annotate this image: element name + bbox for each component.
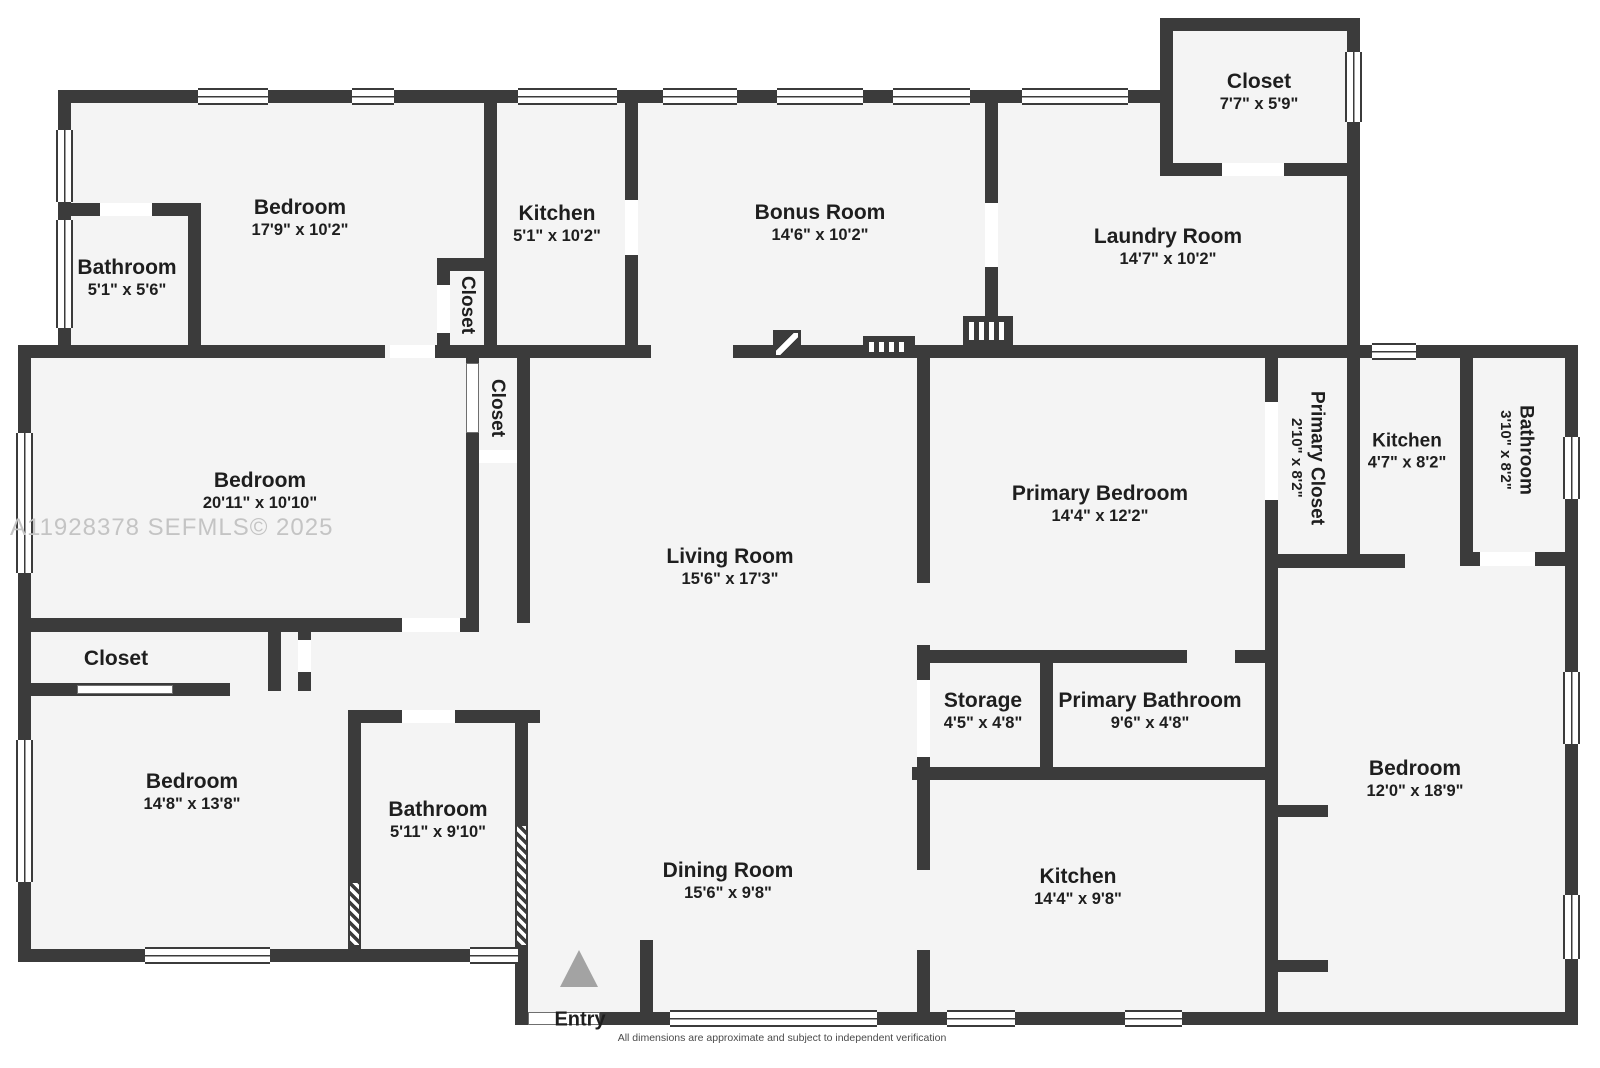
room-name: Closet [456,276,478,334]
room-dims: 3'10" x 8'2" [1495,405,1515,495]
room-name: Bathroom [388,798,487,822]
room-name: Bedroom [1367,757,1464,781]
room-label-primary-closet: Primary Closet 2'10" x 8'2" [1286,391,1327,525]
wall [1265,554,1360,568]
wall [18,345,385,358]
room-name: Closet [486,379,508,437]
wall [917,757,930,870]
window [56,130,73,202]
wall [640,940,653,1025]
wall [1278,960,1328,972]
room-label-bathroom-2: Bathroom 3'10" x 8'2" [1495,405,1536,495]
room-label-bedroom-1: Bedroom 17'9" x 10'2" [252,196,349,242]
door-leaf [466,363,479,433]
room-label-bedroom-2: Bedroom 20'11" x 10'10" [203,469,317,515]
room-dims: 14'8" x 13'8" [144,794,241,815]
wall [1040,663,1053,767]
window [893,88,970,105]
entry-label: Entry [554,1009,605,1032]
window [1563,437,1580,499]
window [16,433,33,573]
room-dims: 14'6" x 10'2" [755,225,886,246]
wall [925,650,1187,663]
window [1345,52,1362,122]
window [777,88,863,105]
room-dims: 14'7" x 10'2" [1094,249,1242,270]
post [773,330,801,358]
room-dims: 9'6" x 4'8" [1058,713,1241,734]
room-name: Primary Bathroom [1058,689,1241,713]
wall [18,618,466,632]
room-label-bedroom-3: Bedroom 14'8" x 13'8" [144,770,241,816]
room-dims: 5'11" x 9'10" [388,822,487,843]
window [1563,895,1580,959]
door-opening [402,618,460,632]
room-label-kitchen-3: Kitchen 14'4" x 9'8" [1034,865,1122,911]
room-label-bonus-room: Bonus Room 14'6" x 10'2" [755,201,886,247]
door-opening [479,450,517,463]
hatched-wall-segment [348,881,361,947]
wall [435,345,651,358]
room-dims: 12'0" x 18'9" [1367,781,1464,802]
door-opening [917,680,930,757]
room-label-bathroom-3: Bathroom 5'11" x 9'10" [388,798,487,844]
door-opening [625,200,638,255]
room-name: Bedroom [252,196,349,220]
wall [1160,18,1173,176]
wall [1460,345,1473,566]
window [1372,343,1416,360]
room-name: Bedroom [203,469,317,493]
room-label-closet-top: Closet 7'7" x 5'9" [1220,70,1299,116]
window [947,1010,1015,1027]
room-name: Bathroom [77,256,176,280]
door-opening [1222,163,1284,176]
wall [484,90,497,358]
window [145,947,270,964]
door-leaf [77,685,173,694]
room-dims: 5'1" x 10'2" [513,226,601,247]
room-dims: 4'7" x 8'2" [1368,452,1447,473]
door-opening [402,710,455,723]
room-label-primary-bedroom: Primary Bedroom 14'4" x 12'2" [1012,482,1188,528]
disclaimer-text: All dimensions are approximate and subje… [618,1032,947,1044]
door-opening [437,285,450,333]
window [1563,672,1580,744]
room-dims: 4'5" x 4'8" [944,713,1023,734]
door-opening [1480,552,1535,566]
wall [517,358,530,623]
room-dims: 2'10" x 8'2" [1286,391,1306,525]
room-name: Primary Bedroom [1012,482,1188,506]
door-opening [1265,402,1278,500]
wall [268,618,281,691]
room-name: Kitchen [513,202,601,226]
door-opening [100,203,152,216]
window [670,1010,877,1027]
room-name: Kitchen [1368,430,1447,452]
room-dims: 17'9" x 10'2" [252,220,349,241]
room-label-closet-mid: Closet [486,379,508,437]
room-label-bathroom-1: Bathroom 5'1" x 5'6" [77,256,176,302]
window [352,88,394,105]
entry-arrow-icon [560,950,598,987]
floor-plan: Closet 7'7" x 5'9" Bedroom 17'9" x 10'2"… [0,0,1600,1068]
room-dims: 15'6" x 17'3" [666,569,793,590]
wall [1278,805,1328,817]
room-name: Living Room [666,545,793,569]
room-name: Primary Closet [1306,391,1328,525]
room-name: Storage [944,689,1023,713]
room-dims: 14'4" x 9'8" [1034,889,1122,910]
room-dims: 15'6" x 9'8" [663,883,794,904]
window [518,88,617,105]
room-label-closet-lower: Closet [84,647,148,671]
room-name: Closet [84,647,148,671]
room-dims: 5'1" x 5'6" [77,280,176,301]
hatched-wall-segment [515,824,528,947]
room-name: Bonus Room [755,201,886,225]
window [470,947,518,964]
window [56,220,73,328]
room-label-primary-bathroom: Primary Bathroom 9'6" x 4'8" [1058,689,1241,735]
window [1125,1010,1182,1027]
wall [917,645,930,680]
floor-main [25,350,1575,1018]
wall [18,949,528,962]
room-label-storage: Storage 4'5" x 4'8" [944,689,1023,735]
window [198,88,268,105]
window [16,740,33,882]
wall [188,203,201,358]
room-dims: 20'11" x 10'10" [203,493,317,514]
wall [912,767,1278,780]
wall [917,950,930,1025]
exterior-mask [0,962,515,1068]
door-opening [390,345,435,358]
room-name: Laundry Room [1094,225,1242,249]
window [1022,88,1128,105]
room-name: Bedroom [144,770,241,794]
door-opening [298,640,311,672]
room-label-living-room: Living Room 15'6" x 17'3" [666,545,793,591]
room-label-kitchen-1: Kitchen 5'1" x 10'2" [513,202,601,248]
room-label-dining-room: Dining Room 15'6" x 9'8" [663,859,794,905]
threshold [863,336,915,358]
room-dims: 7'7" x 5'9" [1220,94,1299,115]
window [663,88,737,105]
mls-watermark: A11928378 SEFMLS© 2025 [10,514,333,542]
room-label-kitchen-2: Kitchen 4'7" x 8'2" [1368,430,1447,473]
threshold [963,316,1013,346]
wall [917,358,930,583]
wall [1160,18,1360,31]
room-name: Closet [1220,70,1299,94]
room-name: Dining Room [663,859,794,883]
door-opening [985,203,998,267]
room-dims: 14'4" x 12'2" [1012,506,1188,527]
room-name: Bathroom [1515,405,1537,495]
room-label-closet-kitchen: Closet [456,276,478,334]
room-name: Kitchen [1034,865,1122,889]
room-label-bedroom-4: Bedroom 12'0" x 18'9" [1367,757,1464,803]
room-label-laundry-room: Laundry Room 14'7" x 10'2" [1094,225,1242,271]
